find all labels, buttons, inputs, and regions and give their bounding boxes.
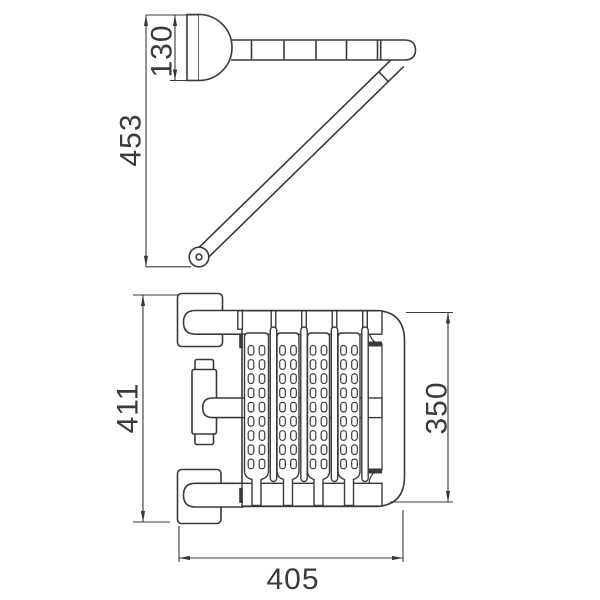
plan-view: 411 350 405 [112, 294, 454, 597]
arrowhead [141, 511, 145, 522]
dimension-411-label: 411 [112, 383, 145, 434]
wall-mount [187, 15, 232, 81]
hook-arm-top [184, 311, 244, 335]
arrowhead [446, 491, 450, 502]
pivot-hub [189, 247, 209, 267]
dimension-350-label: 350 [421, 381, 454, 434]
arrowhead [179, 556, 190, 560]
hook-arm-middle [203, 398, 243, 418]
dimension-130-label: 130 [146, 24, 179, 77]
hook-arm-bottom [184, 483, 244, 507]
arrowhead [446, 313, 450, 324]
arrowhead [141, 295, 145, 306]
technical-drawing-page: 130 453 [0, 0, 600, 600]
diagonal-strut [194, 60, 403, 262]
side-view: 130 453 [115, 15, 416, 267]
dimension-405-label: 405 [266, 563, 319, 596]
arrowhead [392, 556, 403, 560]
arrowhead [173, 15, 177, 26]
dimension-453-label: 453 [115, 113, 148, 166]
technical-drawing: 130 453 [0, 0, 600, 600]
horizontal-bar [231, 40, 416, 60]
arrowhead [144, 256, 148, 267]
arrowhead [144, 15, 148, 26]
dimension-411: 411 [112, 295, 179, 522]
